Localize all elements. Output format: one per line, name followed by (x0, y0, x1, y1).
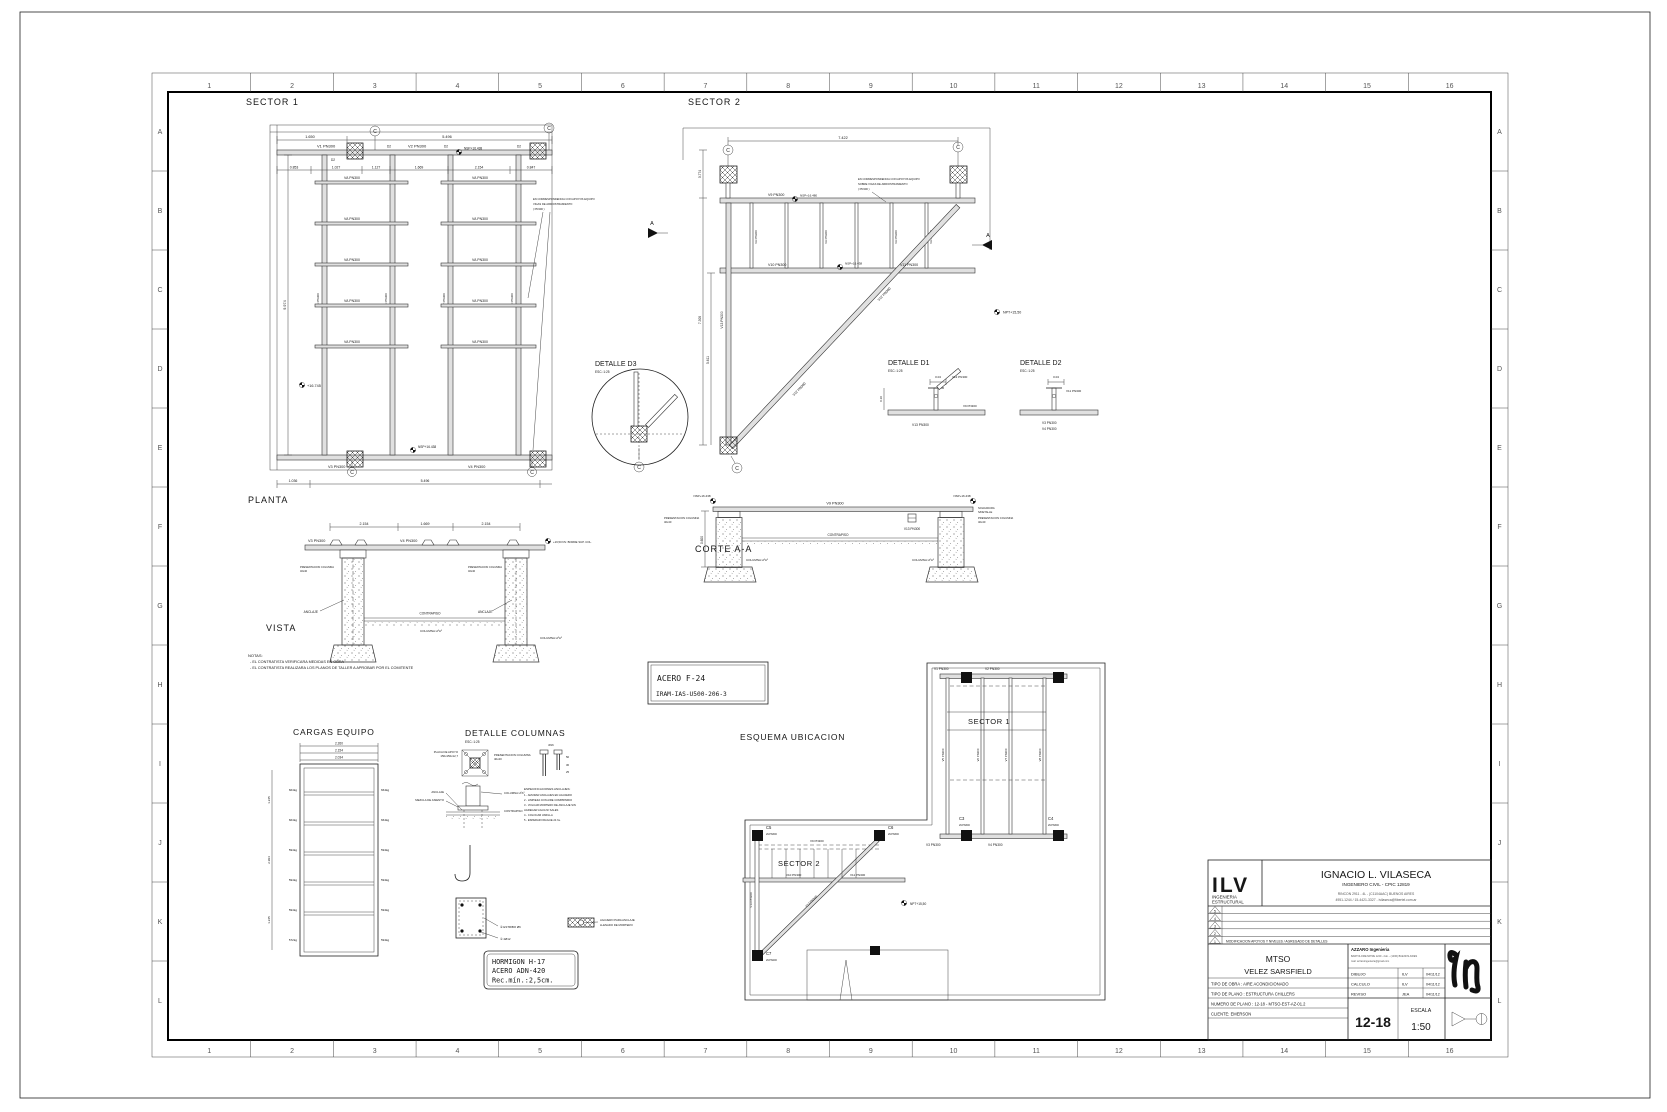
engineer-address: RINCON 2911 - 4L - (C1104AAC) BUENOS AIR… (1338, 892, 1415, 896)
detail-d1-scale: ESC.:1:25 (888, 369, 903, 373)
svg-text:0.04: 0.04 (1053, 375, 1059, 379)
svg-text:1.245: 1.245 (267, 796, 271, 804)
detail-d3: DETALLE D3 ESC.:1:25 C (592, 361, 688, 472)
svg-text:1.669: 1.669 (415, 166, 424, 170)
ruler-number: 4 (455, 1048, 459, 1055)
svg-text:0.774: 0.774 (698, 170, 702, 178)
sector2-title: SECTOR 2 (688, 97, 741, 107)
beam-label-v13: V13 PN300 (904, 527, 921, 531)
beam-label-v9: V9 PN300 (768, 193, 784, 197)
signature-logo (1450, 953, 1478, 991)
escala-value: 1:50 (1411, 1022, 1431, 1033)
hormigon-box: HORMIGON H-17 ACERO ADN-420 Rec.mín.:2,5… (484, 951, 578, 989)
va-label: VA PN300 (344, 176, 360, 180)
ruler-letter: I (1499, 761, 1501, 768)
beam-label-v9: V9 PN300 (826, 502, 843, 506)
va-label: VA PN300 (344, 340, 360, 344)
sector1-dimensions: 1.650 5.496 0.853 1.027 1.127 1.669 2.15… (277, 135, 552, 488)
svg-text:2.260: 2.260 (335, 742, 343, 746)
presentacion-label2: 40x40 (978, 520, 986, 524)
svg-text:4: 4 (1214, 917, 1216, 921)
va-label: VA PN300 (472, 258, 488, 262)
ruler-number: 12 (1115, 1048, 1123, 1055)
columna-label: COLUMNA HºAº (504, 791, 525, 795)
numero-plano: NUMERO DE PLANO : 12-18 - MTSO-EST-AZ-01… (1211, 1002, 1306, 1007)
svg-text:664kg: 664kg (381, 788, 390, 792)
svg-text:2 - LIMPIEZA CON AIRE COMPRIMI: 2 - LIMPIEZA CON AIRE COMPRIMIDO (524, 798, 572, 802)
svg-text:C3: C3 (959, 816, 965, 821)
svg-text:ESPECIFICACIONES ANCLAJES:: ESPECIFICACIONES ANCLAJES: (524, 787, 571, 791)
presentacion-label2: 40x40 (300, 569, 308, 573)
detail-d1-title: DETALLE D1 (888, 360, 930, 367)
svg-text:VA PN300: VA PN300 (754, 230, 758, 244)
tipo-plano: TIPO DE PLANO : ESTRUCTURA CHILLERS (1211, 992, 1295, 997)
ruler-number: 3 (373, 83, 377, 90)
svg-text:664kg: 664kg (289, 788, 298, 792)
mezcla-label: MEZCLA DE ASIENTO (415, 798, 445, 802)
detcol-scale: ESC.:1:25 (465, 740, 480, 744)
ruler-number: 8 (786, 1048, 790, 1055)
beam-label-v10: V10 PN300 (768, 263, 786, 267)
ruler-number: 14 (1280, 83, 1288, 90)
svg-text:( PN300 ): ( PN300 ) (533, 207, 545, 211)
ruler-top: 12345678910111213141516 (207, 73, 1453, 92)
presentacion-label: PRESENTACION COLUMNA (300, 565, 334, 569)
tag-d2: D2 (444, 145, 448, 149)
presentacion-label2: 40x40 (494, 757, 502, 761)
svg-text:25: 25 (566, 770, 570, 774)
beam-label-v11: V11 PN300 (1066, 389, 1081, 393)
svg-text:0.04: 0.04 (935, 375, 941, 379)
ruler-letter: D (1497, 366, 1502, 373)
ruler-number: 13 (1198, 1048, 1206, 1055)
svg-text:JEA: JEA (1402, 992, 1410, 997)
section-marker-c: C (735, 466, 739, 472)
svg-text:7.422: 7.422 (838, 136, 848, 140)
contrapiso-label: CONTRAPISO (419, 612, 441, 616)
beam-label-v3: V3 PN300 (308, 539, 325, 543)
svg-text:594kg: 594kg (381, 848, 390, 852)
ruler-letter: C (1497, 287, 1502, 294)
esquema-sector1-label: SECTOR 1 (968, 717, 1010, 726)
esquema-sector2-label: SECTOR 2 (778, 859, 820, 868)
beam-label-v3: V3 PN300 (328, 465, 345, 469)
drawing-sheet: 12345678910111213141516 1234567891011121… (0, 0, 1667, 1112)
beam-label-v9: V9 PN300 (963, 404, 977, 408)
svg-text:04/11/12: 04/11/12 (1426, 973, 1440, 977)
svg-text:2.154: 2.154 (475, 166, 484, 170)
plug-icon (1452, 1012, 1487, 1026)
svg-text:V7 PN300: V7 PN300 (1004, 748, 1008, 761)
section-marker-c: C (726, 148, 730, 154)
svg-text:C5: C5 (766, 825, 772, 830)
svg-text:2UPN300: 2UPN300 (959, 824, 970, 827)
level-tag-nsp: NSP+16.438 (953, 494, 970, 498)
ruler-letter: B (158, 208, 163, 215)
svg-text:C: C (530, 470, 534, 476)
calculated-by-row: CALCULO ILV 04/11/12 (1351, 982, 1440, 987)
tag-d2: D2 (387, 145, 391, 149)
ruler-letter: J (1498, 840, 1502, 847)
ruler-number: 2 (290, 83, 294, 90)
level-tag: +16,50 NV. BORDE SUP. COL. (553, 540, 592, 544)
level-tag-npt: NPT+15,50 (910, 902, 926, 906)
svg-text:5.611: 5.611 (706, 356, 710, 364)
beam-label-v3: V3 PN300 (1042, 421, 1057, 425)
especificaciones: ESPECIFICACIONES ANCLAJES: 1 - AMURAR AN… (524, 787, 576, 822)
presentacion-label: PRESENTACION COLUMNA (978, 516, 1013, 520)
ruler-number: 16 (1446, 1048, 1454, 1055)
ruler-number: 10 (950, 1048, 958, 1055)
detcol-title: DETALLE COLUMNAS (465, 728, 566, 738)
svg-text:AGUJERO PARA ANCLAJE: AGUJERO PARA ANCLAJE (600, 918, 635, 922)
acero-line1: ACERO F-24 (657, 674, 705, 683)
svg-text:AZZARO Ingenieria: AZZARO Ingenieria (1351, 947, 1390, 952)
ruler-number: 6 (621, 83, 625, 90)
svg-text:594kg: 594kg (381, 878, 390, 882)
ruler-number: 9 (869, 1048, 873, 1055)
va-label: VA PN300 (344, 299, 360, 303)
ruler-letter: J (158, 840, 162, 847)
svg-text:1 - AMURAR ANCLAJES EN AGUJERO: 1 - AMURAR ANCLAJES EN AGUJERO (524, 793, 572, 797)
va-label: VA PN300 (472, 340, 488, 344)
level-tag: +16.745 (307, 384, 321, 388)
anclaje-label: ANCLAJE (431, 790, 444, 794)
anclaje-label: ANCLAJE (478, 610, 492, 614)
svg-text:V6 PN300: V6 PN300 (976, 748, 980, 761)
ruler-number: 1 (207, 83, 211, 90)
esquema-sector2: C5 2UPN300 C6 2UPN300 C7 2UPN200 V9 PN30… (743, 825, 926, 962)
ruler-number: 8 (786, 83, 790, 90)
svg-text:664kg: 664kg (289, 818, 298, 822)
va-beams: VA PN300 VA PN300 VA PN300 VA PN300 VA P… (315, 176, 536, 348)
detalle-columnas: DETALLE COLUMNAS ESC.:1:25 PLACA DE APOY… (415, 728, 635, 941)
svg-text:572kg: 572kg (289, 938, 298, 942)
beam-label-v4: V4 PN300 (400, 539, 417, 543)
contrapiso-label: CONTRAPISO (827, 533, 849, 537)
ruler-number: 11 (1033, 83, 1040, 90)
ruler-number: 6 (621, 1048, 625, 1055)
svg-text:C: C (373, 129, 377, 135)
beam-label-v2: V2 PN300 (408, 144, 427, 149)
tipo-obra: TIPO DE OBRA : AIRE ACONDICIONADO (1211, 982, 1289, 987)
svg-text:V2 PN300: V2 PN300 (985, 667, 1000, 671)
revision-note: MODIFICACION APOYOS Y NIVELES / AGREGADO… (1226, 940, 1328, 944)
svg-text:2.994: 2.994 (267, 856, 271, 864)
placa-label2: 150x150x12,7 (440, 754, 458, 758)
va-label: VA PN300 (472, 299, 488, 303)
detail-d2-title: DETALLE D2 (1020, 360, 1062, 367)
ruler-letter: D (157, 366, 162, 373)
svg-text:CALCULO: CALCULO (1351, 982, 1370, 987)
svg-text:1.036: 1.036 (289, 479, 298, 483)
svg-text:C: C (350, 470, 354, 476)
notas: NOTAS: - EL CONTRATISTA VERIFICARA MEDID… (248, 653, 414, 670)
ruler-letter: C (157, 287, 162, 294)
svg-text:3 - VOLCAR MORTERO DE ANCLAJE: 3 - VOLCAR MORTERO DE ANCLAJE SIN (524, 803, 576, 807)
beam-label-v13: V13 PN300 (912, 423, 929, 427)
svg-text:V3 PN300: V3 PN300 (926, 843, 941, 847)
svg-text:VA PN300: VA PN300 (894, 230, 898, 244)
notas-title: NOTAS: (248, 653, 263, 658)
svg-text:V1 PN300: V1 PN300 (934, 667, 949, 671)
ruler-left: ABCDEFGHIJKL (152, 129, 168, 1005)
columna-label: COLUMNA HºAº (912, 558, 935, 562)
svg-text:0.847: 0.847 (527, 166, 536, 170)
ruler-letter: G (1497, 603, 1502, 610)
soldadura-note: SOLDADURA (978, 506, 995, 510)
beam-label-v1: V1 PN300 (317, 144, 336, 149)
svg-text:BARTOLOME MITRE 1249 - 2do. -: BARTOLOME MITRE 1249 - 2do. - (1036) BUE… (1351, 955, 1418, 958)
ruler-number: 4 (455, 83, 459, 90)
columna-label: COLUMNA HºAº (420, 629, 443, 633)
svg-text:V10 PN300: V10 PN300 (786, 873, 802, 877)
svg-text:EN CORRESPONDENCIA CON APOYOS: EN CORRESPONDENCIA CON APOYOS EQUIPO (533, 197, 595, 201)
svg-text:V5 PN300: V5 PN300 (941, 748, 945, 761)
columna-label: COLUMNA HºAº (540, 636, 563, 640)
svg-text:0.600: 0.600 (700, 536, 704, 544)
svg-text:2.154: 2.154 (335, 749, 343, 753)
ruler-number: 1 (207, 1048, 211, 1055)
svg-text:REVISO: REVISO (1351, 992, 1366, 997)
level-tag-npt: NPT+15,50 (1003, 311, 1021, 315)
corte-aa: CORTE A-A NSP+16.438 NSP+16.438 V9 PN300… (664, 494, 1013, 582)
svg-text:5.496: 5.496 (421, 479, 430, 483)
va-label: VA PN300 (344, 217, 360, 221)
svg-text:594kg: 594kg (381, 908, 390, 912)
sheet-number: 12-18 (1355, 1014, 1391, 1030)
hormigon-line1: HORMIGON H-17 (492, 958, 545, 966)
svg-text:1.027: 1.027 (332, 166, 341, 170)
svg-text:Ø16: Ø16 (548, 743, 554, 747)
svg-text:1: 1 (1214, 940, 1216, 944)
svg-text:2UPN300: 2UPN300 (766, 833, 777, 836)
ruler-letter: K (1497, 919, 1502, 926)
va-label: VA PN300 (344, 258, 360, 262)
svg-text:3: 3 (1214, 925, 1216, 929)
bolt-detail: Ø16 50 30 25 (540, 743, 570, 776)
svg-text:1.669: 1.669 (421, 522, 430, 526)
svg-text:04/11/12: 04/11/12 (1426, 983, 1440, 987)
presentacion-label: PRESENTACION COLUMNA (664, 516, 699, 520)
company-cell: AZZARO Ingenieria BARTOLOME MITRE 1249 -… (1351, 947, 1418, 963)
ruler-number: 7 (704, 83, 708, 90)
ruler-right: ABCDEFGHIJKL (1491, 129, 1508, 1005)
svg-text:5: 5 (1214, 909, 1216, 913)
ruler-letter: G (157, 603, 162, 610)
svg-text:C6: C6 (888, 825, 894, 830)
beam-label-v4: V4 PN300 (468, 465, 485, 469)
svg-text:2: 2 (1214, 932, 1216, 936)
beam-label-v11: V11 PN300 (900, 263, 918, 267)
level-tag-nsp: NSP+16.438 (464, 147, 482, 151)
svg-text:AGREGAR AGUA NI SALES: AGREGAR AGUA NI SALES (524, 808, 559, 812)
reviewed-by-row: REVISO JEA 04/11/12 (1351, 992, 1440, 997)
svg-text:50: 50 (566, 755, 570, 759)
svg-text:A: A (986, 233, 990, 239)
nota-line: - EL CONTRATISTA VERIFICARA MEDIDAS EN O… (250, 660, 344, 664)
cargas-dims: 2.260 2.154 2.034 (300, 742, 378, 763)
section-marker-c: C (637, 465, 641, 471)
svg-text:0.853: 0.853 (290, 166, 299, 170)
detail-d2: DETALLE D2 ESC.:1:25 0.04 V11 PN300 V3 P… (1020, 360, 1098, 431)
acero-line2: IRAM-IAS-U500-206-3 (656, 691, 727, 698)
svg-text:2.154: 2.154 (482, 522, 491, 526)
svg-text:594kg: 594kg (381, 938, 390, 942)
svg-text:C: C (547, 126, 551, 132)
engineer-name: IGNACIO L. VILASECA (1321, 869, 1431, 881)
grout-plate: AGUJERO PARA ANCLAJE LLENADO DE MORTERO (568, 918, 635, 927)
ruler-letter: L (1498, 998, 1502, 1005)
svg-text:1.127: 1.127 (372, 166, 381, 170)
nota-line: - EL CONTRATISTA REALIZARA LOS PLANOS DE… (250, 666, 414, 670)
cad-canvas: 12345678910111213141516 1234567891011121… (0, 0, 1667, 1112)
ruler-letter: I (159, 761, 161, 768)
sector2-plan: SECTOR 2 C C VA PN300 VA PN300 VA PN300 … (648, 97, 1021, 473)
sheet-border (20, 12, 1650, 1098)
ruler-letter: A (1497, 129, 1502, 136)
svg-text:VIGAS DE ARRIOSTRAMIENTO: VIGAS DE ARRIOSTRAMIENTO (533, 202, 572, 206)
svg-text:2UPN300: 2UPN300 (888, 833, 899, 836)
svg-text:ILV: ILV (1402, 982, 1408, 987)
svg-text:C7: C7 (766, 951, 772, 956)
sector1-title: SECTOR 1 (246, 97, 299, 107)
svg-text:( PN300 ): ( PN300 ) (858, 187, 870, 191)
va-label: VA PN300 (472, 176, 488, 180)
ruler-number: 5 (538, 83, 542, 90)
soldadura-note2: S/DETALLE (978, 510, 992, 514)
project-location: VELEZ SARSFIELD (1244, 967, 1312, 976)
ruler-number: 13 (1198, 83, 1206, 90)
ruler-letter: B (1497, 208, 1502, 215)
ruler-number: 5 (538, 1048, 542, 1055)
engineer-contact: 4951-1244 / 15-4421-3327 - ivilaseca@fib… (1335, 898, 1417, 902)
rebar-callout: ② ESTRIBO Ø6 (500, 925, 521, 929)
svg-text:664kg: 664kg (381, 818, 390, 822)
engineer-subtitle: INGENIERO CIVIL - CPIC 12819 (1342, 882, 1410, 887)
vista-title: VISTA (266, 623, 296, 633)
svg-text:LLENADO DE MORTERO: LLENADO DE MORTERO (600, 923, 634, 927)
anclaje-label: ANCLAJE (304, 610, 318, 614)
svg-text:594kg: 594kg (289, 848, 298, 852)
vista-dimensions: 2.154 1.669 2.154 (330, 522, 520, 531)
section-marker-c: C (956, 145, 960, 151)
sector1-plan: SECTOR 1 V5 PN300 V6 PN300 V7 PN300 V8 P… (246, 97, 595, 505)
svg-text:9.974: 9.974 (283, 300, 287, 310)
vista: VISTA 2.154 1.669 2.154 V3 PN300 V4 PN30… (266, 522, 592, 662)
cargas-grid (304, 792, 374, 915)
acero-box: ACERO F-24 IRAM-IAS-U500-206-3 (648, 662, 768, 704)
svg-text:594kg: 594kg (289, 878, 298, 882)
svg-text:VA PN300: VA PN300 (824, 230, 828, 244)
svg-text:V11 PN300: V11 PN300 (850, 873, 865, 877)
level-tag-nsp: NSP+16.480 (800, 194, 817, 198)
svg-text:0.10: 0.10 (879, 396, 883, 402)
svg-text:mail: azzaroingenieria@gmail.c: mail: azzaroingenieria@gmail.com (1351, 960, 1389, 963)
ruler-number: 11 (1033, 1048, 1040, 1055)
ruler-number: 7 (704, 1048, 708, 1055)
svg-text:SOBRE VIGAS DE ARRIOSTRAMIENTO: SOBRE VIGAS DE ARRIOSTRAMIENTO (858, 182, 908, 186)
svg-text:04/11/12: 04/11/12 (1426, 993, 1440, 997)
esquema-sector1: V1 PN300 V2 PN300 V3 PN300 V4 PN300 V5 P… (926, 667, 1067, 847)
svg-text:4 - COLOCAR VARILLA: 4 - COLOCAR VARILLA (524, 813, 553, 817)
svg-text:V8 PN300: V8 PN300 (1038, 748, 1042, 761)
svg-text:1.245: 1.245 (267, 916, 271, 924)
level-tag-nsp: NSP+16.438 (693, 494, 710, 498)
ruler-letter: E (158, 445, 163, 452)
ruler-letter: A (158, 129, 163, 136)
level-tag-nsp: NSP+16.438 (418, 445, 436, 449)
beam-label-v13: V13 PN300 (720, 311, 724, 328)
detail-d2-scale: ESC.:1:25 (1020, 369, 1035, 373)
svg-text:5.496: 5.496 (442, 135, 452, 139)
ruler-number: 12 (1115, 83, 1123, 90)
presentacion-label2: 40x40 (664, 520, 672, 524)
planta-title: PLANTA (248, 495, 288, 505)
ruler-number: 10 (950, 83, 958, 90)
svg-text:5 - ESPERAR FRAGUE 24 hs.: 5 - ESPERAR FRAGUE 24 hs. (524, 818, 561, 822)
rebar-callout: ① 4Ø12 (500, 937, 511, 941)
svg-text:2UPN200: 2UPN200 (766, 959, 777, 962)
svg-text:ILV: ILV (1402, 972, 1408, 977)
svg-text:2UPN300: 2UPN300 (1048, 824, 1059, 827)
svg-text:DIBUJO: DIBUJO (1351, 972, 1366, 977)
ruler-number: 2 (290, 1048, 294, 1055)
columna-label: COLUMNA HºAº (746, 558, 769, 562)
svg-text:V13 PN300: V13 PN300 (749, 892, 753, 908)
ruler-letter: E (1497, 445, 1502, 452)
ruler-letter: H (157, 682, 162, 689)
detail-d1: DETALLE D1 ESC.:1:25 0.04 0.10 V12 PN300… (879, 360, 985, 427)
ruler-number: 3 (373, 1048, 377, 1055)
esquema-ubicacion: ESQUEMA UBICACION V1 PN300 V2 PN300 V3 P… (740, 663, 1105, 1000)
anchor-jbolt (455, 845, 470, 881)
contrapiso-label: CONTRAPISO (504, 809, 523, 813)
cargas-title: CARGAS EQUIPO (293, 727, 375, 737)
presentacion-label2: 40x40 (468, 569, 476, 573)
esquema-title: ESQUEMA UBICACION (740, 732, 845, 742)
beam-label-v4: V4 PN300 (1042, 427, 1057, 431)
svg-text:V4 PN300: V4 PN300 (988, 843, 1003, 847)
revision-table: 5 4 3 2 1 MODIFICACION APOYOS Y NIVELES … (1208, 906, 1491, 944)
ruler-number: 9 (869, 83, 873, 90)
title-block: ILV INGENIERIA ESTRUCTURAL IGNACIO L. VI… (1208, 860, 1491, 1040)
drawn-by-row: DIBUJO ILV 04/11/12 (1351, 972, 1440, 977)
sector1-note: EN CORRESPONDENCIA CON APOYOS EQUIPO VIG… (528, 197, 595, 450)
svg-text:EN CORRESPONDENCIA CON APOYOS: EN CORRESPONDENCIA CON APOYOS EQUIPO (858, 177, 920, 181)
ruler-letter: H (1497, 682, 1502, 689)
ruler-number: 15 (1363, 1048, 1371, 1055)
ruler-letter: K (158, 919, 163, 926)
ilv-logo: ILV INGENIERIA ESTRUCTURAL (1212, 874, 1249, 905)
svg-text:C4: C4 (1048, 816, 1054, 821)
tag-d2: D2 (517, 145, 521, 149)
column-section: ② ESTRIBO Ø6 ① 4Ø12 (456, 898, 521, 941)
ruler-letter: F (158, 524, 162, 531)
svg-text:1.650: 1.650 (305, 135, 315, 139)
ruler-bottom: 12345678910111213141516 (207, 1040, 1453, 1057)
escala-label: ESCALA (1411, 1008, 1432, 1014)
svg-text:7.300: 7.300 (698, 316, 702, 324)
svg-text:A: A (650, 221, 654, 227)
svg-text:V9 PN300: V9 PN300 (810, 839, 824, 843)
cargas-equipo: CARGAS EQUIPO 2.260 2.154 2.034 664kg 66… (267, 727, 390, 956)
beam-label-v12: V12 PN300 (952, 375, 968, 379)
ruler-number: 14 (1280, 1048, 1288, 1055)
hormigon-line2: ACERO ADN-420 (492, 967, 545, 975)
ruler-number: 15 (1363, 83, 1371, 90)
ruler-letter: L (158, 998, 162, 1005)
